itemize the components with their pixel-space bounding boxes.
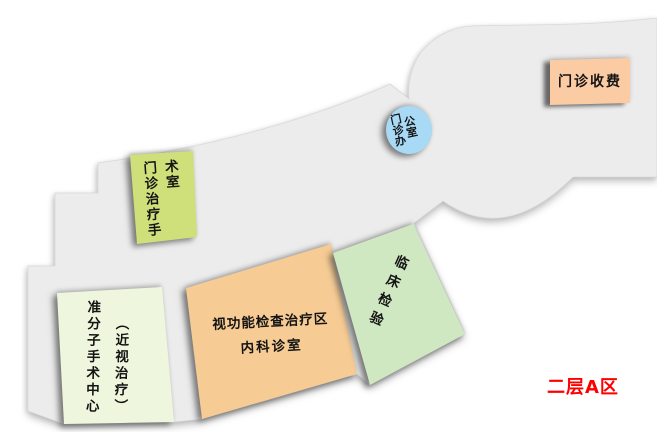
- floor-plan-map: { "area_label": "二层A区", "rooms": { "cash…: [0, 0, 657, 432]
- cashier-label-text: 门诊收费: [558, 75, 622, 89]
- surgery-label-col2: 术室: [162, 159, 178, 191]
- room-surgery-label: 门诊治疗手 术室: [140, 159, 180, 239]
- excimer-label-col2: （近视治疗）: [111, 316, 126, 415]
- room-excimer-label: 准分子手术中心 （近视治疗）: [83, 300, 127, 416]
- area-label: 二层A区: [547, 379, 619, 397]
- room-cashier-label: 门诊收费: [550, 59, 630, 105]
- room-office-label: 门诊办 公室: [389, 110, 419, 147]
- excimer-label-col1: 准分子手术中心: [83, 300, 99, 416]
